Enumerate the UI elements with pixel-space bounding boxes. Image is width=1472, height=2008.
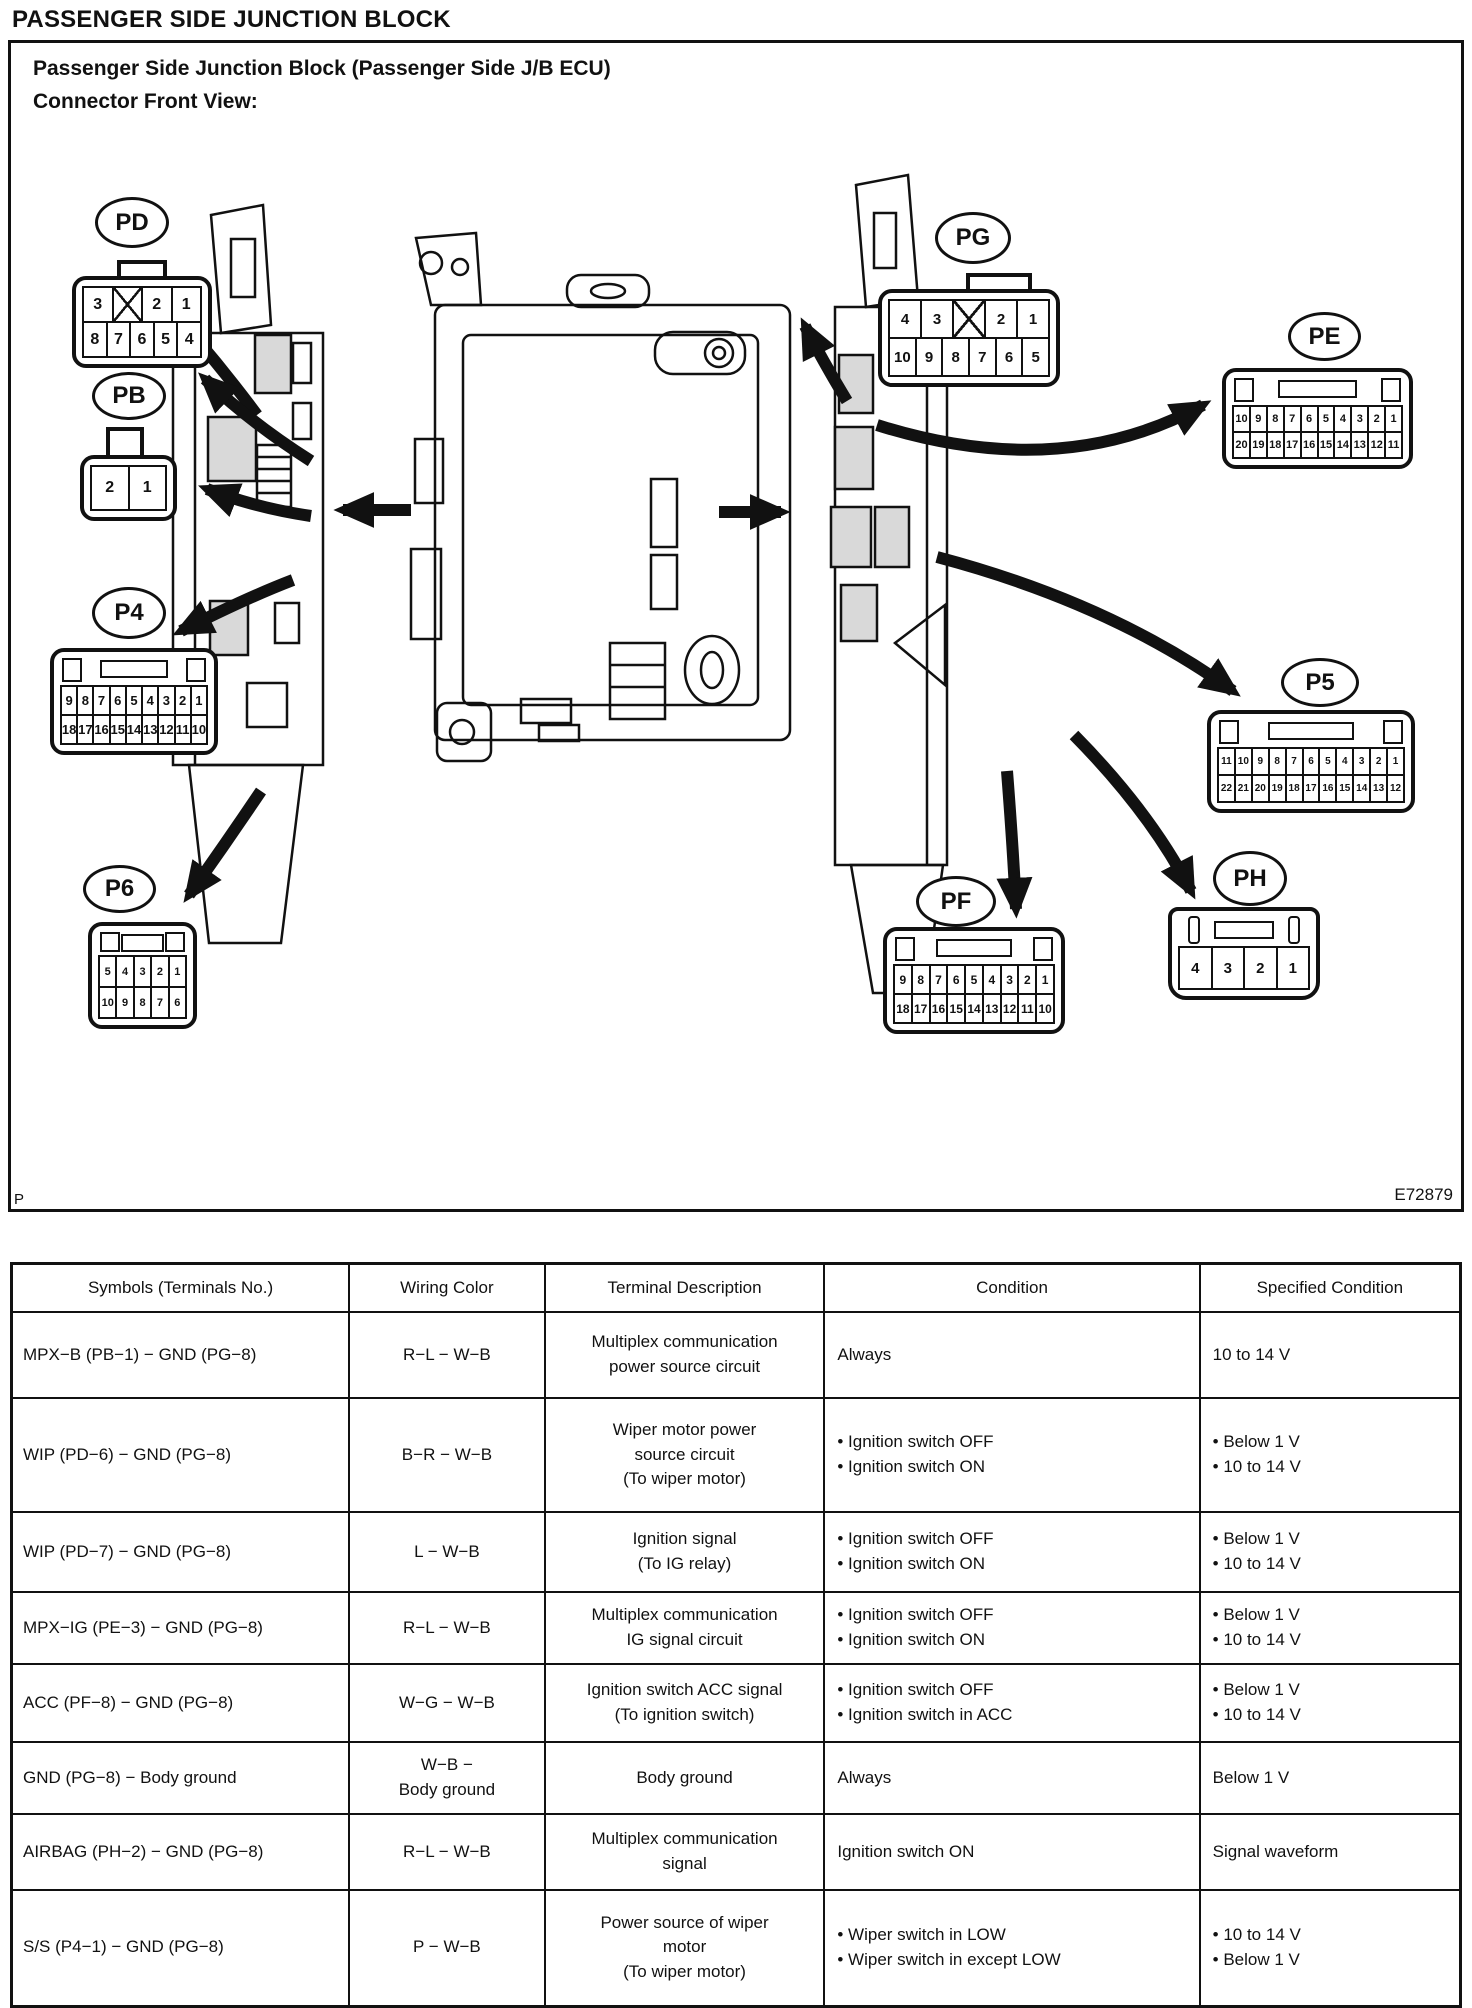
cell-wiring: R−L − W−B — [349, 1814, 545, 1890]
table-row: MPX−IG (PE−3) − GND (PG−8) R−L − W−B Mul… — [12, 1592, 1461, 1664]
pin-2: 2 — [984, 299, 1018, 339]
cell-symbols: S/S (P4−1) − GND (PG−8) — [12, 1890, 350, 2006]
pin-1: 1 — [1016, 299, 1050, 339]
pin-3: 3 — [82, 286, 114, 323]
cell-symbols: AIRBAG (PH−2) − GND (PG−8) — [12, 1814, 350, 1890]
p6-pin-row-1: 54321 — [98, 955, 187, 988]
cell-description: Power source of wiper motor (To wiper mo… — [545, 1890, 825, 2006]
pin-10: 10 — [888, 337, 917, 377]
connector-p4-latch — [62, 658, 206, 682]
connector-p6: 54321 109876 — [88, 922, 197, 1029]
header-specified-condition: Specified Condition — [1200, 1264, 1461, 1313]
cell-wiring: L − W−B — [349, 1512, 545, 1592]
table-header-row: Symbols (Terminals No.) Wiring Color Ter… — [12, 1264, 1461, 1313]
pd-pin-row-1: 321 — [82, 286, 202, 323]
cell-specified: 10 to 14 V — [1200, 1312, 1461, 1398]
label-pd: PD — [95, 197, 169, 248]
table-row: GND (PG−8) − Body ground W−B − Body grou… — [12, 1742, 1461, 1814]
pin-4: 4 — [1178, 946, 1213, 990]
cell-wiring: W−G − W−B — [349, 1664, 545, 1742]
p4-pin-row-1: 987654321 — [60, 685, 208, 716]
pin-5: 5 — [153, 321, 179, 358]
pin-5: 5 — [1021, 337, 1050, 377]
pin-2: 2 — [141, 286, 173, 323]
pin-1: 1 — [171, 286, 203, 323]
label-pb: PB — [92, 372, 166, 420]
pin-2: 2 — [1243, 946, 1278, 990]
arrow-group — [159, 297, 1233, 909]
pin-12: 12 — [1386, 774, 1405, 803]
pd-pin-row-2: 87654 — [82, 321, 202, 358]
cell-symbols: WIP (PD−6) − GND (PG−8) — [12, 1398, 350, 1512]
blocked-pin — [952, 299, 986, 339]
pe-pin-row-1: 10987654321 — [1232, 405, 1403, 433]
connector-pd: 321 87654 — [72, 260, 212, 368]
cell-wiring: R−L − W−B — [349, 1312, 545, 1398]
connector-pd-tab — [117, 260, 167, 276]
cell-description: Ignition signal (To IG relay) — [545, 1512, 825, 1592]
cell-condition: • Wiper switch in LOW • Wiper switch in … — [824, 1890, 1199, 2006]
blocked-pin — [112, 286, 144, 323]
cell-description: Wiper motor power source circuit (To wip… — [545, 1398, 825, 1512]
pf-pin-row-1: 987654321 — [893, 964, 1055, 995]
label-pe: PE — [1288, 312, 1361, 361]
table-row: ACC (PF−8) − GND (PG−8) W−G − W−B Igniti… — [12, 1664, 1461, 1742]
pin-6: 6 — [995, 337, 1024, 377]
cell-symbols: MPX−IG (PE−3) − GND (PG−8) — [12, 1592, 350, 1664]
cell-condition: Ignition switch ON — [824, 1814, 1199, 1890]
pin-4: 4 — [176, 321, 202, 358]
cell-condition: • Ignition switch OFF • Ignition switch … — [824, 1592, 1199, 1664]
connector-pb: 21 — [80, 427, 177, 521]
connector-pe-latch — [1234, 378, 1401, 402]
cell-symbols: ACC (PF−8) − GND (PG−8) — [12, 1664, 350, 1742]
cell-wiring: R−L − W−B — [349, 1592, 545, 1664]
cell-symbols: MPX−B (PB−1) − GND (PG−8) — [12, 1312, 350, 1398]
header-symbols: Symbols (Terminals No.) — [12, 1264, 350, 1313]
connector-pg: 4321 1098765 — [878, 273, 1060, 387]
cell-condition: • Ignition switch OFF • Ignition switch … — [824, 1398, 1199, 1512]
header-terminal-description: Terminal Description — [545, 1264, 825, 1313]
cell-specified: Below 1 V — [1200, 1742, 1461, 1814]
p4-pin-row-2: 181716151413121110 — [60, 714, 208, 745]
cell-specified: • Below 1 V • 10 to 14 V — [1200, 1398, 1461, 1512]
table-row: S/S (P4−1) − GND (PG−8) P − W−B Power so… — [12, 1890, 1461, 2006]
pin-1: 1 — [1386, 747, 1405, 776]
cell-description: Multiplex communication power source cir… — [545, 1312, 825, 1398]
pin-7: 7 — [968, 337, 997, 377]
label-p5: P5 — [1281, 658, 1359, 707]
table-row: MPX−B (PB−1) − GND (PG−8) R−L − W−B Mult… — [12, 1312, 1461, 1398]
connector-p5-latch — [1219, 720, 1403, 744]
pin-4: 4 — [888, 299, 922, 339]
cell-description: Ignition switch ACC signal (To ignition … — [545, 1664, 825, 1742]
label-pf: PF — [916, 876, 996, 927]
pg-pin-row-1: 4321 — [888, 299, 1050, 339]
pin-10: 10 — [190, 714, 208, 745]
pin-6: 6 — [129, 321, 155, 358]
table-row: WIP (PD−7) − GND (PG−8) L − W−B Ignition… — [12, 1512, 1461, 1592]
pin-3: 3 — [920, 299, 954, 339]
cell-condition: Always — [824, 1312, 1199, 1398]
connector-ph-latch — [1188, 917, 1300, 943]
cell-specified: Signal waveform — [1200, 1814, 1461, 1890]
cell-description: Multiplex communication signal — [545, 1814, 825, 1890]
pin-8: 8 — [82, 321, 108, 358]
connector-p6-latch — [100, 932, 185, 952]
pin-10: 10 — [1035, 993, 1055, 1024]
pin-1: 1 — [1276, 946, 1311, 990]
p5-pin-row-1: 1110987654321 — [1217, 747, 1405, 776]
label-ph: PH — [1213, 851, 1287, 906]
connector-ph: 4321 — [1168, 907, 1320, 1000]
cell-symbols: GND (PG−8) − Body ground — [12, 1742, 350, 1814]
pin-1: 1 — [1384, 405, 1403, 433]
p5-pin-row-2: 2221201918171615141312 — [1217, 774, 1405, 803]
terminal-spec-table: Symbols (Terminals No.) Wiring Color Ter… — [10, 1262, 1462, 2008]
pin-1: 1 — [1035, 964, 1055, 995]
pin-1: 1 — [128, 465, 168, 511]
junction-block-drawing — [11, 43, 1461, 1209]
pin-11: 11 — [1384, 431, 1403, 459]
pin-7: 7 — [106, 321, 132, 358]
label-p6: P6 — [83, 865, 156, 913]
cell-wiring: W−B − Body ground — [349, 1742, 545, 1814]
cell-condition: Always — [824, 1742, 1199, 1814]
connector-p4: 987654321 181716151413121110 — [50, 648, 218, 755]
cell-specified: • Below 1 V • 10 to 14 V — [1200, 1592, 1461, 1664]
cell-description: Multiplex communication IG signal circui… — [545, 1592, 825, 1664]
cell-specified: • Below 1 V • 10 to 14 V — [1200, 1512, 1461, 1592]
connector-pf-latch — [895, 937, 1053, 961]
connector-p5: 1110987654321 2221201918171615141312 — [1207, 710, 1415, 813]
pin-6: 6 — [168, 986, 187, 1019]
cell-symbols: WIP (PD−7) − GND (PG−8) — [12, 1512, 350, 1592]
cell-condition: • Ignition switch OFF • Ignition switch … — [824, 1664, 1199, 1742]
cell-description: Body ground — [545, 1742, 825, 1814]
cell-specified: • 10 to 14 V • Below 1 V — [1200, 1890, 1461, 2006]
pin-1: 1 — [190, 685, 208, 716]
header-condition: Condition — [824, 1264, 1199, 1313]
pin-1: 1 — [168, 955, 187, 988]
cell-specified: • Below 1 V • 10 to 14 V — [1200, 1664, 1461, 1742]
connector-pe: 10987654321 20191817161514131211 — [1222, 368, 1413, 469]
connector-pb-tab — [106, 427, 144, 455]
table-row: WIP (PD−6) − GND (PG−8) B−R − W−B Wiper … — [12, 1398, 1461, 1512]
label-p4: P4 — [92, 587, 166, 639]
pf-pin-row-2: 181716151413121110 — [893, 993, 1055, 1024]
p6-pin-row-2: 109876 — [98, 986, 187, 1019]
cell-wiring: P − W−B — [349, 1890, 545, 2006]
pg-pin-row-2: 1098765 — [888, 337, 1050, 377]
page-title: PASSENGER SIDE JUNCTION BLOCK — [12, 6, 451, 34]
pe-pin-row-2: 20191817161514131211 — [1232, 431, 1403, 459]
connector-pf: 987654321 181716151413121110 — [883, 927, 1065, 1034]
label-pg: PG — [935, 212, 1011, 264]
header-wiring-color: Wiring Color — [349, 1264, 545, 1313]
cell-condition: • Ignition switch OFF • Ignition switch … — [824, 1512, 1199, 1592]
pb-pin-row-1: 21 — [90, 465, 167, 511]
ph-pin-row-1: 4321 — [1178, 946, 1310, 990]
pin-2: 2 — [90, 465, 130, 511]
cell-wiring: B−R − W−B — [349, 1398, 545, 1512]
connector-pg-tab — [966, 273, 1032, 289]
table-row: AIRBAG (PH−2) − GND (PG−8) R−L − W−B Mul… — [12, 1814, 1461, 1890]
pin-3: 3 — [1211, 946, 1246, 990]
connector-figure: Passenger Side Junction Block (Passenger… — [8, 40, 1464, 1212]
pin-9: 9 — [915, 337, 944, 377]
pin-8: 8 — [941, 337, 970, 377]
